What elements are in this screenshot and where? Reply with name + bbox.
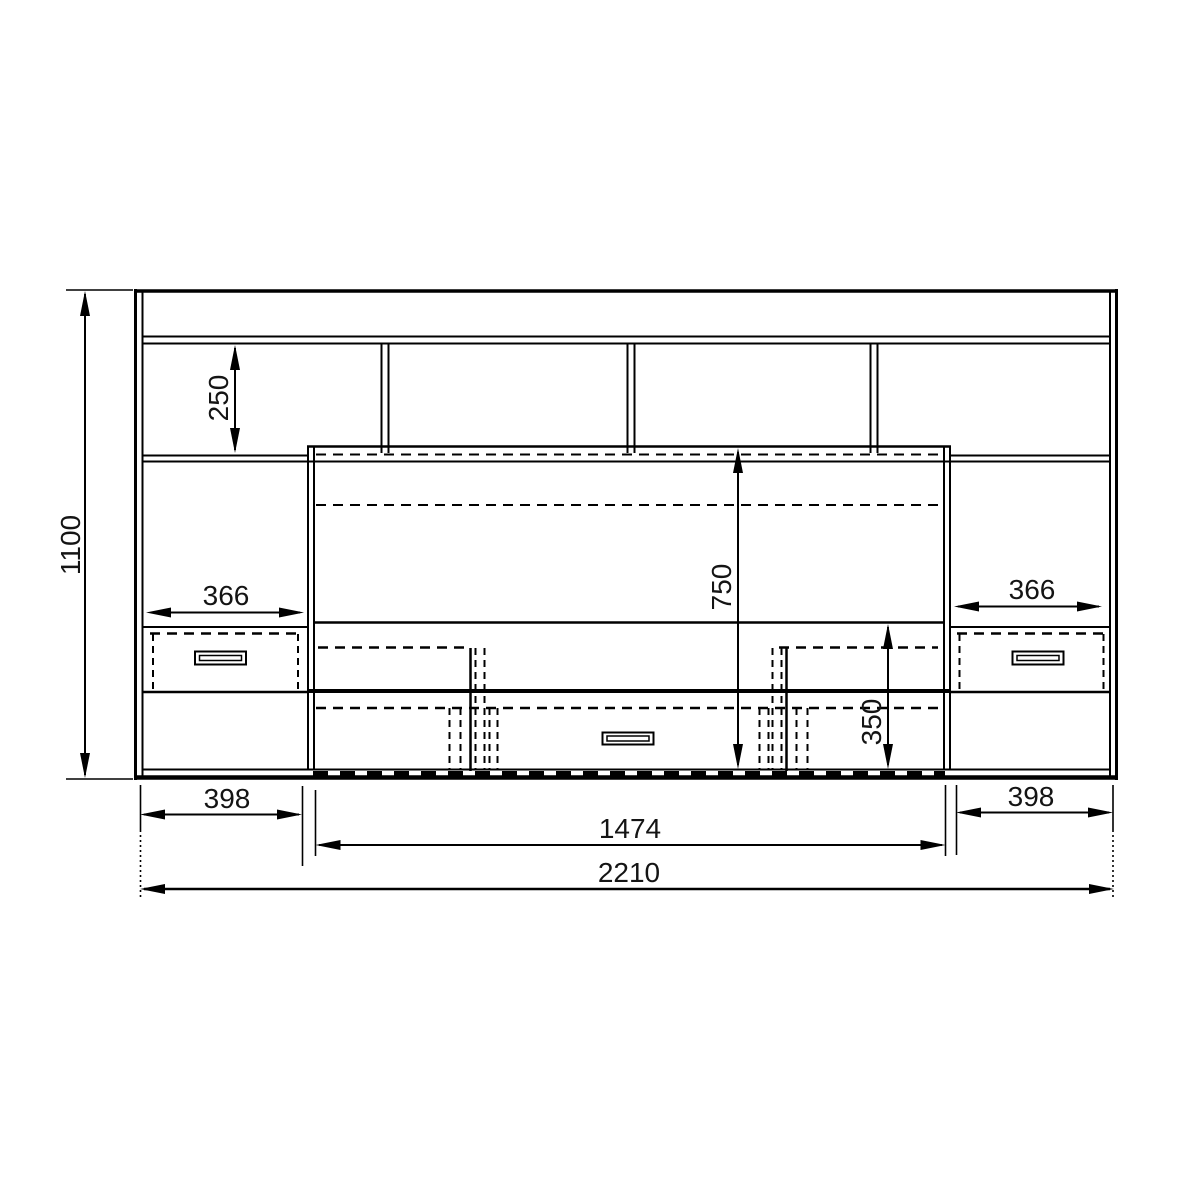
furniture-elevation-drawing: 1100 250 750 350 366 366 <box>0 0 1200 1199</box>
dim-label-base-zone-height: 350 <box>856 699 887 746</box>
dim-label-tv-section-height: 750 <box>706 564 737 611</box>
dim-label-right-drawer-width: 366 <box>1009 574 1056 605</box>
dim-label-top-shelf-height: 250 <box>203 375 234 422</box>
dim-label-overall-width: 2210 <box>598 857 660 888</box>
drawing-canvas: 1100 250 750 350 366 366 <box>0 0 1200 1199</box>
dim-label-left-section-width: 398 <box>204 783 251 814</box>
dim-label-right-section-width: 398 <box>1008 781 1055 812</box>
dim-label-overall-height: 1100 <box>55 515 86 575</box>
dim-label-center-section-width: 1474 <box>599 813 661 844</box>
dim-label-left-drawer-width: 366 <box>203 580 250 611</box>
